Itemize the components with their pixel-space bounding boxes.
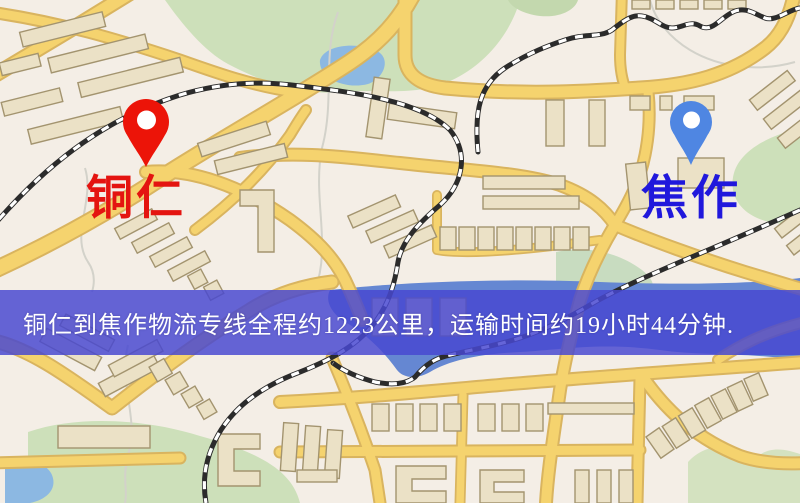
origin-marker-pin[interactable] bbox=[111, 95, 181, 173]
origin-city-label: 铜仁 bbox=[86, 176, 186, 223]
map-pin-icon bbox=[670, 101, 712, 165]
map-background bbox=[0, 0, 800, 503]
destination-city-label: 焦作 bbox=[641, 176, 741, 223]
route-info-banner: 铜仁到焦作物流专线全程约1223公里，运输时间约19小时44分钟. bbox=[0, 290, 800, 355]
route-info-text: 铜仁到焦作物流专线全程约1223公里，运输时间约19小时44分钟. bbox=[23, 305, 734, 340]
destination-marker-pin[interactable] bbox=[659, 99, 723, 171]
map-pin-icon bbox=[123, 99, 169, 167]
logistics-route-map: 铜仁 焦作 铜仁到焦作物流专线全程约1223公里，运输时间约19小时44分钟. bbox=[0, 0, 800, 503]
